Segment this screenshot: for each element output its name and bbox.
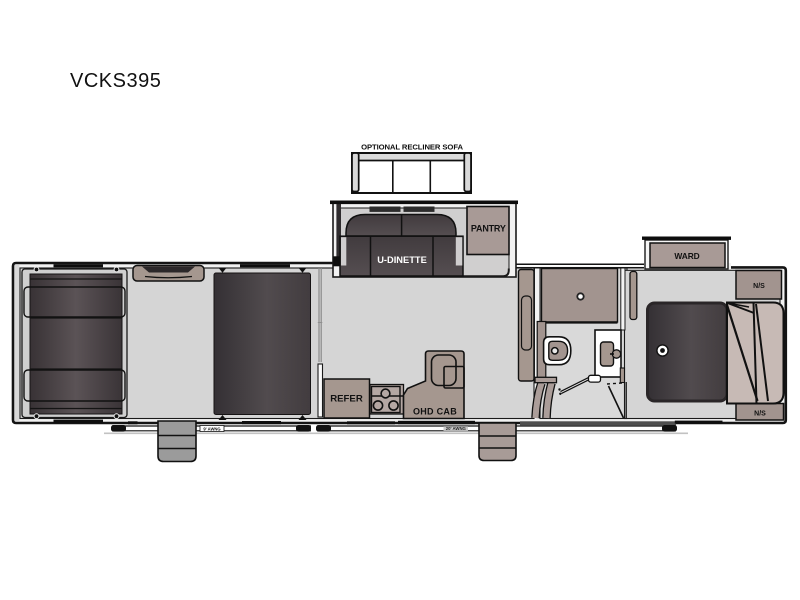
svg-text:PANTRY: PANTRY xyxy=(471,224,506,234)
svg-text:WARD: WARD xyxy=(674,251,699,261)
svg-text:N/S: N/S xyxy=(753,283,765,290)
svg-text:N/S: N/S xyxy=(754,411,766,418)
svg-text:VCKS395: VCKS395 xyxy=(70,70,161,92)
svg-text:20' AWNG: 20' AWNG xyxy=(446,426,467,431)
svg-text:OHD CAB: OHD CAB xyxy=(413,407,457,417)
svg-text:OPTIONAL RECLINER SOFA: OPTIONAL RECLINER SOFA xyxy=(361,143,463,152)
svg-text:9' AWNG: 9' AWNG xyxy=(203,426,220,431)
svg-text:U-DINETTE: U-DINETTE xyxy=(377,255,427,265)
svg-text:REFER: REFER xyxy=(330,394,363,405)
